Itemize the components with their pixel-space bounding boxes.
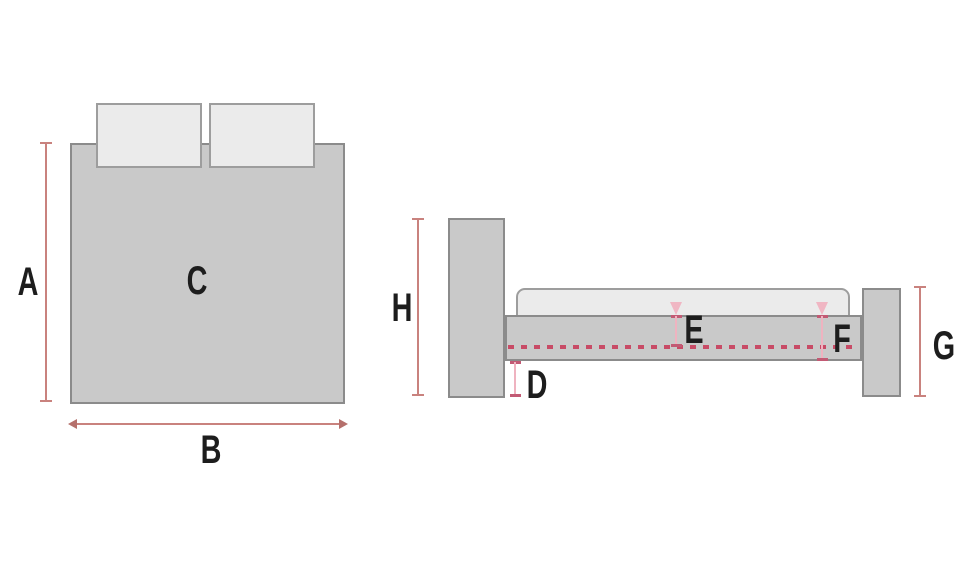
dimension-headboard-bottom-tick [412,394,424,396]
label-bed-length: A [18,262,39,302]
dimension-width-left-arrow [68,419,77,429]
dimension-footboard-top-tick [914,286,926,288]
headboard [448,218,505,398]
footboard [862,288,901,397]
slat-level-dotted-line [508,345,857,349]
dimension-footboard-bottom-tick [914,395,926,397]
label-under-bed-clearance: D [527,365,548,405]
dimension-slat-depth-arrow [670,302,682,315]
label-rail-height: F [833,319,851,359]
label-bed-surface: C [187,261,208,301]
mattress-side [516,288,850,317]
dimension-length-bottom-tick [40,400,52,402]
dimension-line-length [45,143,47,402]
label-bed-width: B [201,430,222,470]
pillow-right [209,103,315,168]
label-footboard-height: G [933,326,955,366]
label-rail-top-to-slats: E [684,310,703,350]
dimension-line-clearance [514,362,516,395]
dimension-width-right-arrow [339,419,348,429]
dimension-rail-height-arrow [816,302,828,315]
dimension-line-rail-height [821,316,823,360]
pillow-left [96,103,202,168]
dimension-headboard-top-tick [412,218,424,220]
dimension-line-width [74,423,342,425]
dimension-line-footboard-height [919,287,921,397]
dimension-rail-height-bottom-tick [817,358,828,361]
label-headboard-height: H [392,288,413,328]
dimension-line-headboard-height [417,219,419,396]
dimension-length-top-tick [40,142,52,144]
dimension-line-slat-depth [675,316,677,346]
dimension-clearance-bottom-tick [510,394,521,397]
bed-dimensions-diagram: C A B H D [0,0,960,570]
dimension-slat-depth-bottom-tick [671,344,682,347]
bed-surface-rect [70,143,345,404]
